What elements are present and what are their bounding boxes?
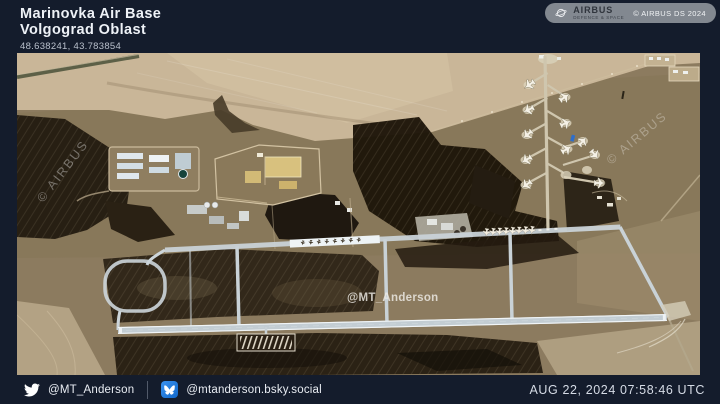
- timestamp: AUG 22, 2024 07:58:46 UTC: [529, 383, 705, 397]
- attribution-bar: @MT_Anderson @mtanderson.bsky.social AUG…: [0, 375, 720, 404]
- airbus-credit-badge: AIRBUS DEFENCE & SPACE © AIRBUS DS 2024: [545, 3, 716, 23]
- bluesky-icon: [161, 381, 178, 398]
- image-header: Marinovka Air Base Volgograd Oblast 48.6…: [20, 6, 161, 52]
- base-title: Marinovka Air Base: [20, 6, 161, 22]
- author-watermark: @MT_Anderson: [347, 292, 438, 304]
- bluesky-handle: @mtanderson.bsky.social: [186, 384, 322, 396]
- airbus-wordmark: AIRBUS DEFENCE & SPACE: [573, 6, 624, 21]
- twitter-handle: @MT_Anderson: [48, 384, 134, 396]
- base-subtitle: Volgograd Oblast: [20, 22, 161, 38]
- base-coordinates: 48.638241, 43.783854: [20, 41, 161, 52]
- airbus-copyright: © AIRBUS DS 2024: [633, 9, 706, 18]
- airbus-logo-icon: [555, 7, 567, 19]
- divider: [147, 381, 148, 399]
- twitter-icon: [24, 382, 40, 398]
- satellite-image: © AIRBUS © AIRBUS @MT_Anderson: [17, 53, 700, 375]
